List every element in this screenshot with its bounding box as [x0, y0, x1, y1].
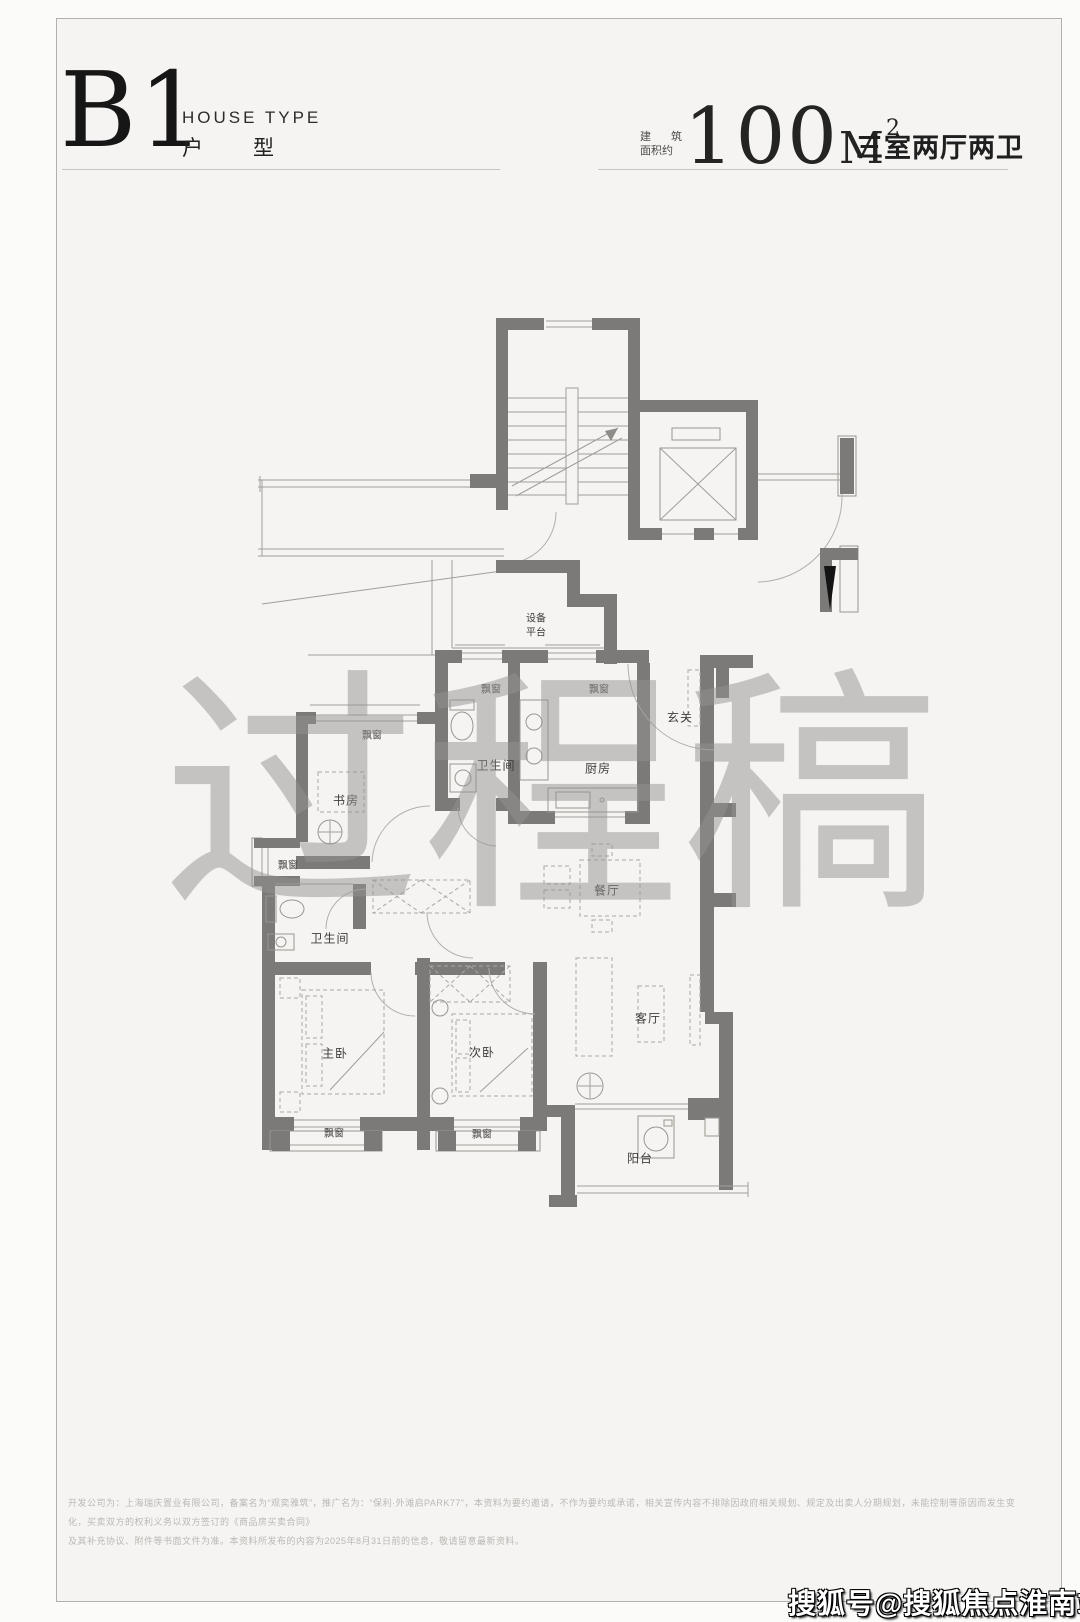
area-value: 100: [684, 92, 839, 182]
label-kitchen: 厨房: [585, 760, 611, 777]
label-master-bedroom: 主卧: [322, 1045, 348, 1062]
header-divider-left: [62, 169, 500, 170]
floor-plan: [190, 290, 870, 1220]
house-type-cn-char2: 型: [253, 132, 274, 162]
flyer-page: B1 HOUSE TYPE 户 型 建 筑 面积约 100M2 三室两厅两卫: [0, 0, 1080, 1622]
stairwell: [470, 318, 640, 564]
sohu-watermark-badge: 搜狐号@搜狐焦点淮南站: [788, 1582, 1080, 1622]
label-bay-window-second: 飘窗: [472, 1126, 492, 1141]
label-bathroom-1: 卫生间: [476, 757, 515, 774]
label-bay-window-bath1: 飘窗: [481, 681, 501, 696]
furniture: [266, 670, 700, 1158]
entry-corridor: [258, 436, 858, 655]
label-bay-window-left: 飘窗: [278, 857, 298, 872]
layout-summary: 三室两厅两卫: [856, 126, 1024, 165]
label-equipment-line2: 平台: [526, 624, 546, 639]
house-type-cn-char1: 户: [182, 132, 203, 162]
label-balcony: 阳台: [627, 1150, 653, 1167]
area-prefix-line2: 面积约: [640, 145, 673, 157]
area-prefix-line1: 建 筑: [640, 130, 682, 144]
label-bathroom-2: 卫生间: [310, 930, 349, 947]
label-entry: 玄关: [667, 709, 693, 726]
elevator: [628, 400, 758, 540]
house-type-label-en: HOUSE TYPE: [182, 108, 321, 128]
house-type-label-cn: 户 型: [182, 132, 274, 162]
disclaimer-line2: 及其补充协议、附件等书面文件为准。本资料所发布的内容为2025年8月31日前的信…: [68, 1532, 1023, 1551]
label-bay-window-kitchen: 飘窗: [589, 681, 609, 696]
label-second-bedroom: 次卧: [469, 1044, 495, 1061]
disclaimer: 开发公司为：上海瑞庆置业有限公司，备案名为“观奕雅筑”，推广名为：“保利·外滩启…: [68, 1494, 1023, 1551]
label-bay-window-master: 飘窗: [324, 1125, 344, 1140]
label-equipment-line1: 设备: [526, 610, 546, 625]
label-living-room: 客厅: [635, 1010, 661, 1027]
label-bay-window-study: 飘窗: [362, 727, 382, 742]
label-study: 书房: [333, 792, 359, 809]
label-dining: 餐厅: [594, 882, 620, 899]
unit-walls: [252, 560, 753, 1207]
area-prefix: 建 筑 面积约: [640, 130, 682, 158]
disclaimer-line1: 开发公司为：上海瑞庆置业有限公司，备案名为“观奕雅筑”，推广名为：“保利·外滩启…: [68, 1494, 1023, 1532]
